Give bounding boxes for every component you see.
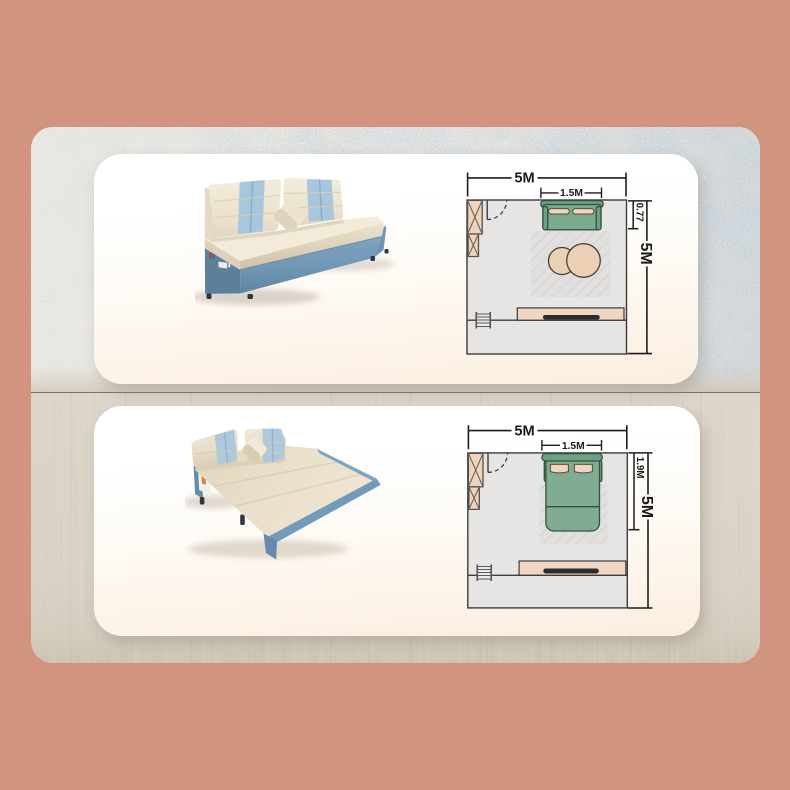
svg-text:5M: 5M [638, 496, 655, 518]
svg-text:1.9M: 1.9M [634, 457, 645, 479]
svg-text:5M: 5M [514, 171, 534, 187]
svg-text:5M: 5M [514, 423, 534, 439]
svg-text:1.5M: 1.5M [562, 441, 585, 452]
svg-text:1.5M: 1.5M [560, 188, 583, 199]
svg-text:5M: 5M [637, 242, 654, 264]
svg-text:0.77: 0.77 [633, 203, 644, 223]
